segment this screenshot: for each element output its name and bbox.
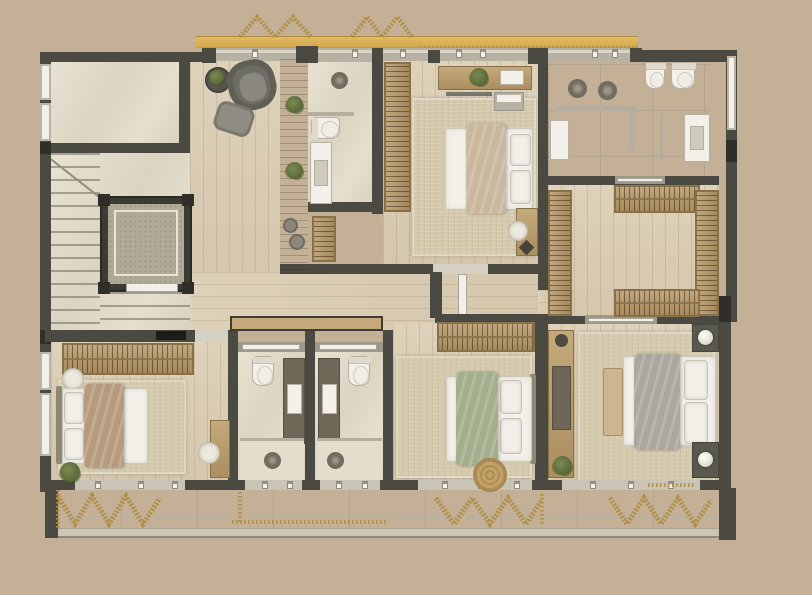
- toilet-tank: [672, 63, 696, 70]
- door-post: [362, 481, 368, 489]
- wardrobe: [614, 289, 700, 317]
- rope-zigzag-decoration: [238, 14, 314, 38]
- shower-half-wall: [556, 106, 636, 111]
- wardrobe-shelf-line: [439, 336, 533, 338]
- wall-balcony: [700, 480, 719, 490]
- stool: [283, 218, 298, 233]
- pillow: [64, 392, 84, 424]
- wall-pier: [719, 296, 731, 322]
- rope-zigzag-decoration: [350, 14, 416, 38]
- wall-terrace-stair: [51, 143, 190, 153]
- shower-glass-partition: [308, 112, 354, 116]
- bidet-bowl: [650, 72, 664, 88]
- window-post: [480, 49, 486, 58]
- vase: [555, 334, 568, 347]
- plant: [286, 162, 303, 179]
- door-post: [287, 481, 293, 489]
- tray: [500, 70, 524, 85]
- wardrobe-shelf-line: [64, 358, 192, 360]
- shower-half-wall: [630, 106, 635, 150]
- balcony-end-wall-right: [719, 488, 736, 540]
- window-post: [252, 49, 258, 58]
- door-opening-bedroom-left: [195, 330, 228, 342]
- plant: [553, 456, 572, 475]
- wall-balcony: [302, 480, 320, 490]
- wardrobe: [62, 343, 194, 375]
- elevator-corner: [182, 282, 194, 294]
- toilet-bowl: [321, 121, 339, 138]
- shower-drain: [327, 452, 344, 469]
- pillow: [500, 418, 522, 454]
- door-post: [95, 481, 101, 489]
- sink: [314, 160, 328, 186]
- door-post: [628, 481, 634, 489]
- window: [40, 103, 51, 141]
- duvet: [466, 124, 506, 214]
- desk-chair: [508, 221, 528, 241]
- wall-pier: [428, 50, 440, 63]
- window-post: [400, 49, 406, 58]
- window-post: [352, 49, 358, 58]
- terrace-room-floor: [51, 62, 180, 143]
- window-post: [592, 49, 598, 58]
- wall-balcony: [380, 480, 418, 490]
- rope-fringe: [238, 492, 242, 522]
- toilet: [348, 356, 370, 386]
- wardrobe: [548, 190, 572, 316]
- bathroom-bulkhead-shelf: [230, 316, 383, 331]
- window-band-glass: [202, 50, 640, 53]
- window-post: [612, 49, 618, 58]
- sink: [287, 384, 302, 414]
- toilet: [311, 117, 340, 139]
- wall-terrace-lounge: [179, 60, 190, 152]
- pillow: [500, 380, 522, 414]
- round-side-table: [62, 368, 84, 390]
- table-lamp: [698, 330, 713, 345]
- wardrobe-shelf-line: [616, 198, 698, 200]
- shower-drain: [331, 72, 348, 89]
- elevator-corner: [182, 194, 194, 206]
- bidet-tank: [646, 63, 666, 70]
- sliding-door-leaf: [617, 178, 663, 182]
- door-post: [262, 481, 268, 489]
- wall-bedroom-top-bottom: [488, 264, 538, 274]
- exterior-wall-top-right: [640, 50, 737, 62]
- tv-bedroom-left: [156, 331, 186, 340]
- shower-drain: [598, 81, 617, 100]
- rope-zigzag-decoration: [434, 494, 546, 528]
- duvet: [84, 384, 124, 468]
- rope-zigzag-decoration: [56, 492, 164, 528]
- wall-bedroom-middle-master: [535, 322, 548, 482]
- pillow: [510, 170, 531, 204]
- toilet-tank: [349, 357, 371, 364]
- pillow: [510, 134, 531, 166]
- door-post: [442, 481, 448, 489]
- linen-closet: [312, 216, 336, 262]
- wardrobe-shelf-line: [616, 302, 698, 304]
- door-post: [590, 481, 596, 489]
- pillow: [684, 360, 708, 400]
- sliding-door-leaf: [242, 344, 300, 350]
- bidet: [645, 62, 665, 89]
- plant: [60, 462, 80, 482]
- wardrobe: [614, 185, 700, 213]
- wall-balcony: [185, 480, 245, 490]
- wardrobe: [384, 62, 411, 212]
- plant: [209, 70, 224, 85]
- table-lamp: [698, 452, 713, 467]
- rope-trim: [648, 483, 694, 487]
- rope-zigzag-decoration: [608, 494, 714, 528]
- toilet-bowl: [677, 72, 693, 88]
- bed-end-bench: [603, 368, 623, 436]
- stool: [289, 234, 305, 250]
- duvet: [634, 354, 680, 450]
- wall-suite-west: [538, 48, 548, 290]
- shower-drain: [264, 452, 281, 469]
- rope-fringe: [232, 520, 388, 524]
- rope-fringe: [56, 490, 60, 530]
- suite-entry-floor: [538, 290, 548, 316]
- floor-plan: [0, 0, 812, 595]
- rope-fringe: [540, 494, 544, 524]
- balcony-railing: [45, 528, 736, 538]
- plant: [286, 96, 303, 113]
- tv-console: [446, 92, 492, 96]
- window: [40, 352, 51, 390]
- wall-balcony: [532, 480, 562, 490]
- toilet: [252, 356, 274, 386]
- window-bathroom-b: [320, 480, 380, 490]
- bench-cushion: [496, 94, 522, 103]
- window: [727, 56, 736, 130]
- vanity-divider: [660, 114, 663, 160]
- sliding-door-leaf: [588, 318, 654, 322]
- wall-pier: [726, 140, 737, 162]
- window-post: [456, 49, 462, 58]
- window: [40, 393, 51, 456]
- door-post: [138, 481, 144, 489]
- console-runner: [552, 366, 571, 430]
- plant: [470, 68, 488, 86]
- window: [40, 64, 51, 100]
- exterior-wall-right-lower: [719, 322, 731, 490]
- door-post: [172, 481, 178, 489]
- toilet-bowl: [257, 366, 273, 385]
- door-post: [336, 481, 342, 489]
- window-bathroom-a: [245, 480, 302, 490]
- elevator-corner: [98, 194, 110, 206]
- wall-bathroom-b-right: [383, 330, 393, 482]
- pillow: [684, 402, 708, 444]
- shower-bench: [550, 120, 569, 160]
- exterior-wall-top-left: [40, 52, 202, 62]
- stair-flight-bottom: [100, 292, 190, 330]
- wall-pier: [40, 142, 51, 154]
- toilet: [671, 62, 695, 89]
- elevator-corner: [98, 282, 110, 294]
- sliding-door-leaf: [319, 344, 377, 350]
- pillow: [64, 428, 84, 460]
- toilet-bowl: [353, 366, 369, 385]
- door-post: [514, 481, 520, 489]
- toilet-tank: [253, 357, 275, 364]
- desk-chair: [198, 442, 220, 464]
- shower-drain: [568, 79, 587, 98]
- duvet: [456, 372, 498, 466]
- toilet-tank: [312, 118, 318, 141]
- jute-pouf: [473, 458, 507, 492]
- sink: [322, 384, 337, 414]
- wardrobe: [437, 322, 535, 352]
- elevator-door: [126, 283, 178, 292]
- wall-between-bathrooms: [305, 330, 315, 482]
- wall-ensuite-right: [372, 48, 383, 214]
- sink: [690, 126, 704, 150]
- elevator-cab-outline: [114, 210, 178, 276]
- sliding-door-balcony-bedroom-left: [75, 480, 185, 490]
- wall-pier: [202, 48, 216, 63]
- wall-hall-stub: [430, 272, 442, 318]
